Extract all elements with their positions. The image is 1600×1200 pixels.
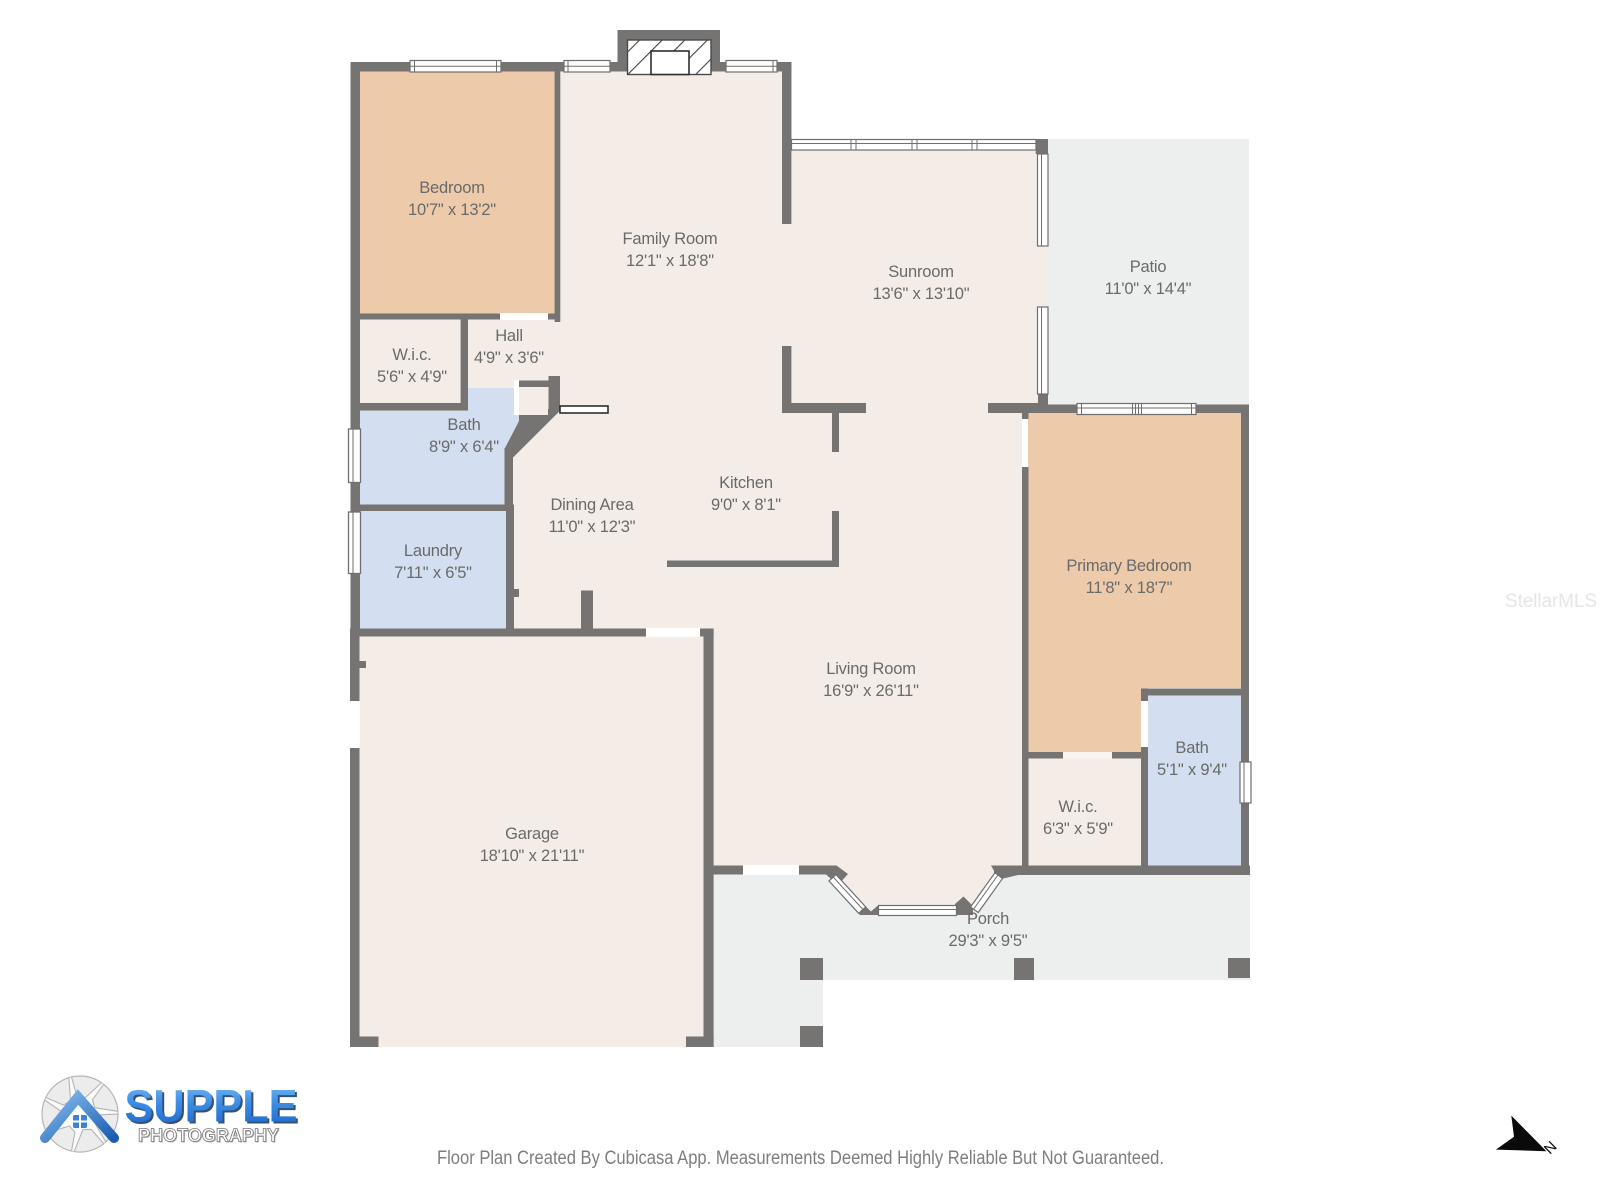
- svg-text:13'6" x 13'10": 13'6" x 13'10": [873, 285, 970, 303]
- svg-text:18'10" x 21'11": 18'10" x 21'11": [480, 847, 585, 865]
- svg-text:5'1" x 9'4": 5'1" x 9'4": [1157, 761, 1227, 779]
- svg-text:Patio: Patio: [1130, 258, 1167, 276]
- svg-text:Hall: Hall: [495, 327, 523, 345]
- svg-text:Family Room: Family Room: [623, 230, 718, 248]
- svg-text:Bath: Bath: [447, 416, 480, 434]
- svg-text:11'8" x 18'7": 11'8" x 18'7": [1086, 579, 1173, 597]
- svg-text:Living Room: Living Room: [826, 660, 916, 678]
- svg-text:Porch: Porch: [967, 910, 1009, 928]
- svg-text:Laundry: Laundry: [404, 542, 463, 560]
- svg-text:16'9" x 26'11": 16'9" x 26'11": [823, 682, 919, 700]
- svg-text:W.i.c.: W.i.c.: [392, 346, 431, 364]
- svg-text:8'9" x 6'4": 8'9" x 6'4": [429, 438, 499, 456]
- svg-text:PHOTOGRAPHY: PHOTOGRAPHY: [138, 1126, 279, 1146]
- svg-text:7'11" x 6'5": 7'11" x 6'5": [394, 564, 472, 582]
- svg-text:Bath: Bath: [1175, 739, 1208, 757]
- svg-text:9'0" x 8'1": 9'0" x 8'1": [711, 496, 781, 514]
- svg-text:Kitchen: Kitchen: [719, 474, 773, 492]
- svg-text:12'1" x 18'8": 12'1" x 18'8": [626, 252, 714, 270]
- svg-text:Sunroom: Sunroom: [888, 263, 954, 281]
- svg-text:29'3" x 9'5": 29'3" x 9'5": [949, 932, 1028, 950]
- svg-text:Dining Area: Dining Area: [550, 496, 634, 514]
- svg-text:Primary Bedroom: Primary Bedroom: [1066, 557, 1191, 575]
- svg-text:6'3" x 5'9": 6'3" x 5'9": [1043, 820, 1113, 838]
- svg-text:11'0" x 14'4": 11'0" x 14'4": [1105, 280, 1192, 298]
- svg-text:Bedroom: Bedroom: [419, 179, 485, 197]
- svg-text:W.i.c.: W.i.c.: [1058, 798, 1097, 816]
- svg-text:StellarMLS: StellarMLS: [1505, 591, 1597, 612]
- svg-text:5'6" x 4'9": 5'6" x 4'9": [377, 368, 447, 386]
- svg-text:SUPPLE: SUPPLE: [125, 1081, 298, 1132]
- svg-text:Floor Plan Created By Cubicasa: Floor Plan Created By Cubicasa App. Meas…: [437, 1148, 1164, 1169]
- svg-text:4'9" x 3'6": 4'9" x 3'6": [474, 349, 544, 367]
- svg-text:11'0" x 12'3": 11'0" x 12'3": [549, 518, 636, 536]
- svg-text:Garage: Garage: [505, 825, 559, 843]
- svg-text:10'7" x 13'2": 10'7" x 13'2": [408, 201, 496, 219]
